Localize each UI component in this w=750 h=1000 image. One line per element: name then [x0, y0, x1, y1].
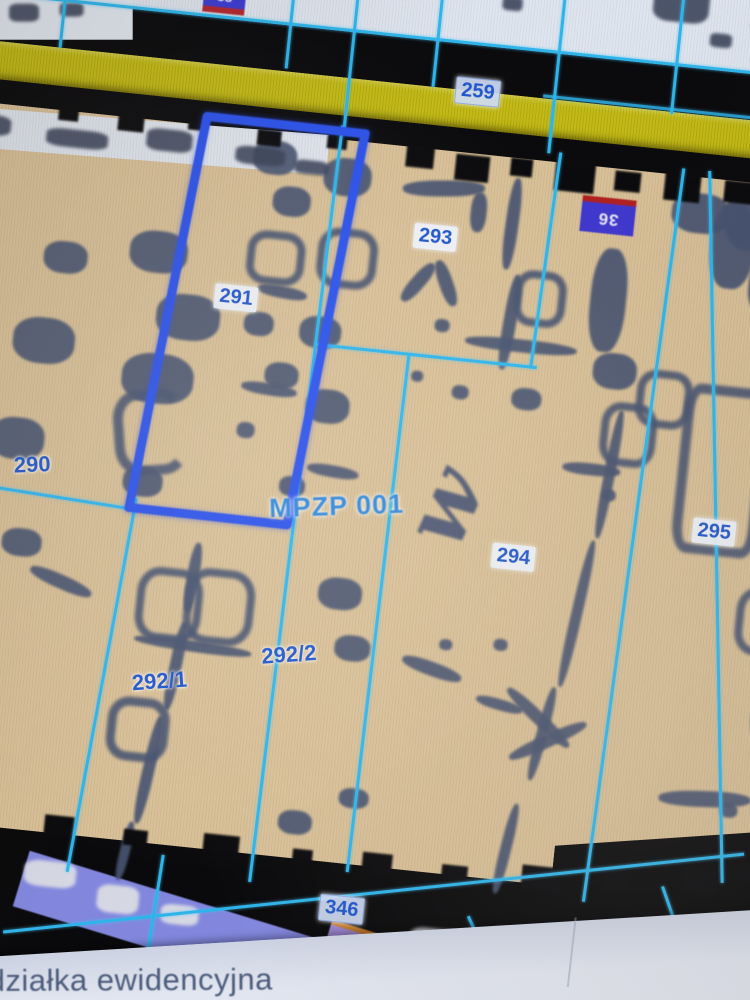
scan-glyph-light	[96, 883, 141, 915]
parcel-label-294[interactable]: 294	[491, 543, 537, 572]
map-feature	[493, 638, 508, 651]
footer-divider	[567, 917, 577, 987]
road-marker-36-text: 36	[596, 203, 620, 235]
sheet-glyph	[709, 33, 732, 49]
map-feature	[434, 318, 450, 332]
scan-edge-tooth	[520, 864, 562, 894]
map-viewer-photo: w 259 290 291 292/1 292/2 293 294 295 34…	[0, 0, 750, 1000]
map-feature	[403, 180, 485, 196]
parcel-label-291[interactable]: 291	[213, 283, 259, 312]
scan-edge-tooth	[614, 170, 642, 193]
map-canvas[interactable]: w 259 290 291 292/1 292/2 293 294 295 34…	[0, 0, 750, 1000]
map-feature-ring	[180, 566, 258, 649]
parcel-label-292-2[interactable]: 292/2	[260, 639, 317, 670]
footer-caption: działka ewidencyjna	[0, 962, 273, 999]
parcel-label-290[interactable]: 290	[13, 450, 51, 479]
parcel-label-293[interactable]: 293	[413, 223, 459, 252]
parcel-label-259[interactable]: 259	[454, 76, 502, 108]
sheet-glyph	[502, 0, 523, 12]
scan-edge-tooth	[117, 114, 145, 133]
scan-edge-tooth	[123, 829, 149, 847]
map-feature	[411, 370, 424, 382]
map-feature-ring	[633, 368, 695, 432]
scan-edge-tooth	[292, 848, 313, 864]
scan-edge-tooth	[43, 814, 75, 837]
scan-edge-tooth	[723, 180, 750, 205]
sheet-glyph	[9, 4, 39, 22]
scan-edge-tooth	[510, 157, 534, 177]
parcel-label-292-1[interactable]: 292/1	[131, 666, 188, 697]
road-marker-36: 36	[579, 195, 636, 236]
parcel-label-346[interactable]: 346	[318, 893, 366, 925]
scan-edge-tooth	[202, 833, 240, 861]
parcel-label-295[interactable]: 295	[691, 517, 737, 546]
scan-edge-tooth	[742, 864, 750, 884]
scan-edge-tooth	[361, 852, 393, 877]
map-feature-ring	[104, 694, 172, 764]
map-feature	[439, 639, 453, 651]
scan-edge-tooth	[681, 867, 717, 894]
scan-edge-tooth	[405, 144, 435, 169]
scan-edge-tooth	[58, 106, 79, 122]
map-feature	[451, 384, 469, 400]
scan-edge-tooth	[454, 154, 491, 183]
scan-edge-tooth	[601, 869, 631, 892]
plan-label-mpzp[interactable]: MPZP 001	[269, 489, 405, 525]
